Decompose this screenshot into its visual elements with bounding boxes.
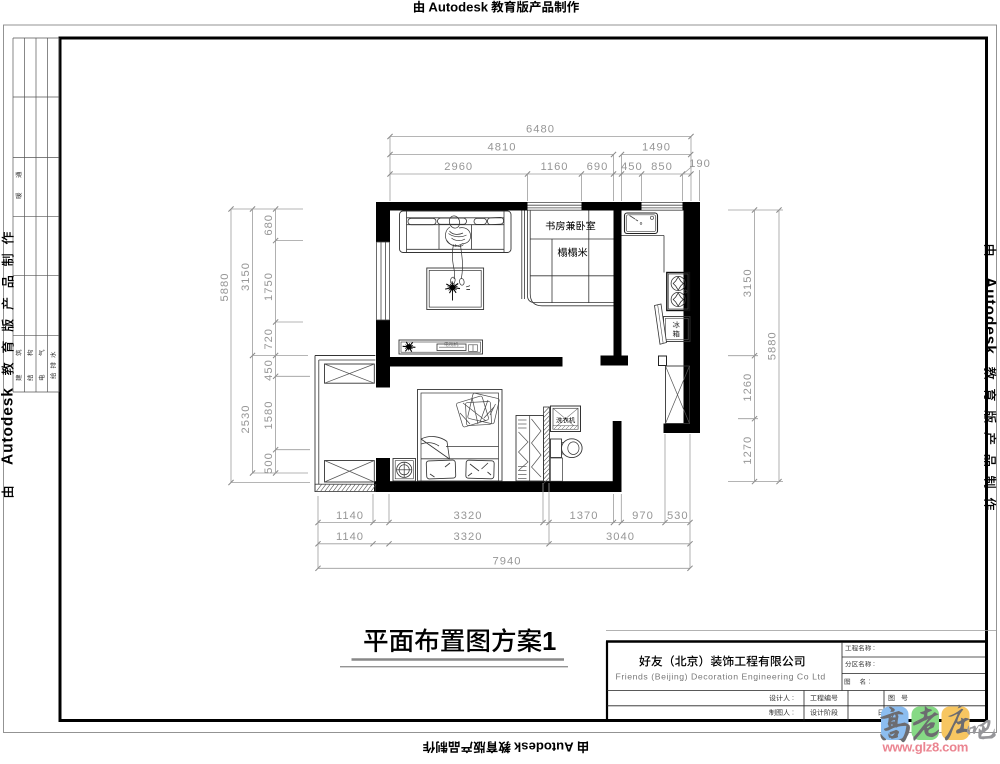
svg-text::: : xyxy=(873,645,875,652)
svg-text:3320: 3320 xyxy=(454,510,483,522)
svg-text:500: 500 xyxy=(263,452,275,474)
svg-text:1260: 1260 xyxy=(742,373,754,402)
svg-text:6480: 6480 xyxy=(526,124,555,136)
svg-text:Friends (Beijing) Decoration E: Friends (Beijing) Decoration Engineering… xyxy=(616,672,826,682)
svg-text:720: 720 xyxy=(263,328,275,350)
svg-text:1140: 1140 xyxy=(336,531,364,543)
svg-text:2530: 2530 xyxy=(240,405,252,434)
svg-text:Autodesk: Autodesk xyxy=(0,387,17,465)
svg-text::: : xyxy=(792,710,794,717)
svg-text:1580: 1580 xyxy=(263,401,275,430)
svg-text:3040: 3040 xyxy=(606,531,635,543)
svg-text:5880: 5880 xyxy=(766,331,778,360)
svg-text:3320: 3320 xyxy=(454,531,483,543)
svg-text:450: 450 xyxy=(263,359,275,381)
svg-text::: : xyxy=(869,679,871,686)
svg-text:Autodesk: Autodesk xyxy=(981,277,998,355)
svg-text::: : xyxy=(873,661,875,668)
svg-text:1140: 1140 xyxy=(336,510,364,522)
svg-text:190: 190 xyxy=(689,158,711,170)
svg-text:5880: 5880 xyxy=(219,273,231,302)
svg-text::: : xyxy=(792,695,794,702)
svg-text:690: 690 xyxy=(587,161,609,173)
svg-text:3150: 3150 xyxy=(742,268,754,297)
svg-text:7940: 7940 xyxy=(493,556,522,568)
svg-text:970: 970 xyxy=(632,510,654,522)
svg-text:1750: 1750 xyxy=(263,272,275,301)
svg-text:1270: 1270 xyxy=(742,436,754,465)
svg-text:www.glz8.com: www.glz8.com xyxy=(882,740,969,755)
svg-text:850: 850 xyxy=(651,161,673,173)
svg-text:1490: 1490 xyxy=(642,142,671,154)
svg-text:530: 530 xyxy=(667,510,689,522)
svg-text:450: 450 xyxy=(621,161,643,173)
svg-text:1370: 1370 xyxy=(570,510,599,522)
svg-text:2960: 2960 xyxy=(444,161,473,173)
svg-text:1: 1 xyxy=(542,628,556,656)
svg-text:3150: 3150 xyxy=(240,262,252,291)
svg-text:1160: 1160 xyxy=(540,161,568,173)
svg-text:Autodesk: Autodesk xyxy=(513,740,573,755)
svg-text:4810: 4810 xyxy=(488,142,517,154)
svg-text:Autodesk: Autodesk xyxy=(428,0,488,15)
svg-text:680: 680 xyxy=(263,214,275,236)
